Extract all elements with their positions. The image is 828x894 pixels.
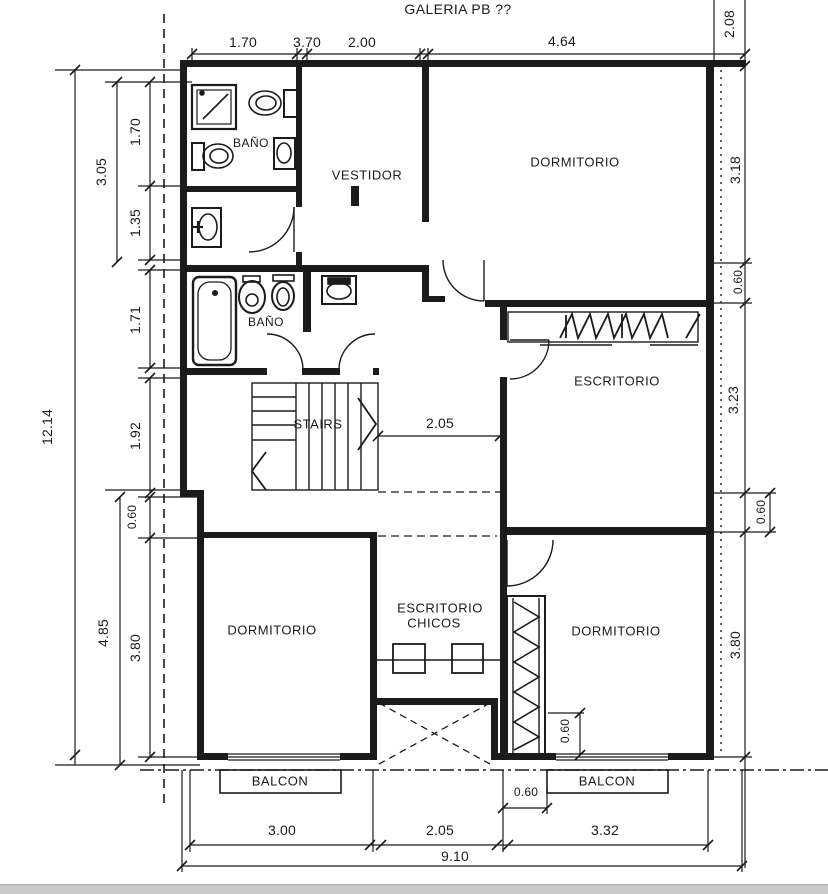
dim-left-2: 1.71 bbox=[128, 306, 142, 334]
dim-inner-closet: 0.60 bbox=[559, 719, 571, 743]
dim-bottom-total: 9.10 bbox=[441, 849, 469, 863]
room-label-bano-top: BAÑO bbox=[233, 137, 269, 149]
door-arc bbox=[339, 334, 375, 370]
floorplan-sheet: GALERIA PB ?? 1.70 3.70 2.00 4.64 2.08 3… bbox=[0, 0, 828, 894]
door-arc bbox=[507, 540, 553, 586]
sink-icon bbox=[322, 276, 356, 304]
dim-right-4: 0.60 bbox=[755, 500, 767, 524]
door-arc bbox=[443, 260, 484, 301]
dim-right-3: 3.23 bbox=[726, 386, 740, 414]
chair-icon bbox=[452, 644, 483, 673]
room-label-dormitorio-left: DORMITORIO bbox=[227, 624, 316, 637]
dim-right-2: 0.60 bbox=[732, 270, 744, 294]
room-label-bano-mid: BAÑO bbox=[248, 316, 284, 328]
dim-top-1: 1.70 bbox=[229, 35, 257, 49]
door-arc bbox=[510, 340, 549, 379]
bathtub-icon bbox=[193, 277, 236, 365]
dim-bottom-3: 3.32 bbox=[591, 823, 619, 837]
dim-left-3: 1.92 bbox=[128, 422, 142, 450]
door-arc bbox=[249, 207, 294, 252]
dim-left-4: 0.60 bbox=[126, 505, 138, 529]
floorplan-drawing bbox=[0, 0, 828, 894]
dim-right-1: 3.18 bbox=[728, 156, 742, 184]
dim-top-4: 4.64 bbox=[548, 34, 576, 48]
room-label-balcon-right: BALCON bbox=[579, 775, 635, 788]
scan-edge-strip bbox=[0, 884, 828, 894]
dim-left-5: 4.85 bbox=[96, 619, 110, 647]
stairs-treads bbox=[252, 383, 378, 490]
outer-walls bbox=[180, 60, 746, 760]
chair-icon bbox=[393, 644, 425, 673]
dim-left-1b: 1.35 bbox=[128, 209, 142, 237]
door-arc bbox=[267, 334, 303, 370]
room-label-escritorio-chicos-2: CHICOS bbox=[407, 617, 461, 630]
dim-left-6: 3.80 bbox=[128, 634, 142, 662]
sink-icon bbox=[192, 208, 221, 247]
room-label-escritorio: ESCRITORIO bbox=[574, 375, 660, 388]
toilet-icon bbox=[192, 143, 233, 170]
shower-icon bbox=[192, 85, 236, 129]
void-x-mark bbox=[379, 703, 490, 764]
toilet-icon bbox=[272, 275, 294, 310]
dim-inner-hall: 2.05 bbox=[426, 416, 454, 430]
dim-left-total: 12.14 bbox=[40, 409, 54, 445]
dim-balcony-gap: 0.60 bbox=[514, 786, 538, 798]
sink-icon bbox=[274, 138, 295, 169]
room-label-dormitorio-top: DORMITORIO bbox=[530, 156, 619, 169]
room-label-balcon-left: BALCON bbox=[252, 775, 308, 788]
dim-left-1a: 1.70 bbox=[128, 118, 142, 146]
dim-right-0: 2.08 bbox=[722, 10, 736, 38]
desk-icons bbox=[377, 644, 500, 673]
room-label-stairs: STAIRS bbox=[294, 418, 343, 431]
room-label-escritorio-chicos-1: ESCRITORIO bbox=[397, 602, 483, 615]
closet-dormitorio-right bbox=[507, 596, 545, 758]
room-label-vestidor: VESTIDOR bbox=[332, 169, 402, 182]
window-right bbox=[556, 753, 668, 761]
dim-bottom-1: 3.00 bbox=[268, 823, 296, 837]
dim-top-3: 2.00 bbox=[348, 35, 376, 49]
room-label-dormitorio-right: DORMITORIO bbox=[571, 625, 660, 638]
dim-top-2: 3.70 bbox=[293, 35, 321, 49]
bidet-icon bbox=[239, 276, 265, 313]
dim-left-1: 3.05 bbox=[94, 158, 108, 186]
interior-partitions bbox=[180, 66, 706, 760]
dim-right-5: 3.80 bbox=[728, 631, 742, 659]
dim-bottom-2: 2.05 bbox=[426, 823, 454, 837]
stairs-arrow-icon bbox=[252, 452, 266, 490]
dimension-lines bbox=[55, 0, 776, 872]
window-left bbox=[228, 753, 340, 761]
toilet-icon bbox=[249, 90, 297, 117]
drawing-title: GALERIA PB ?? bbox=[404, 2, 511, 16]
bathroom-top-fixtures bbox=[192, 85, 297, 247]
